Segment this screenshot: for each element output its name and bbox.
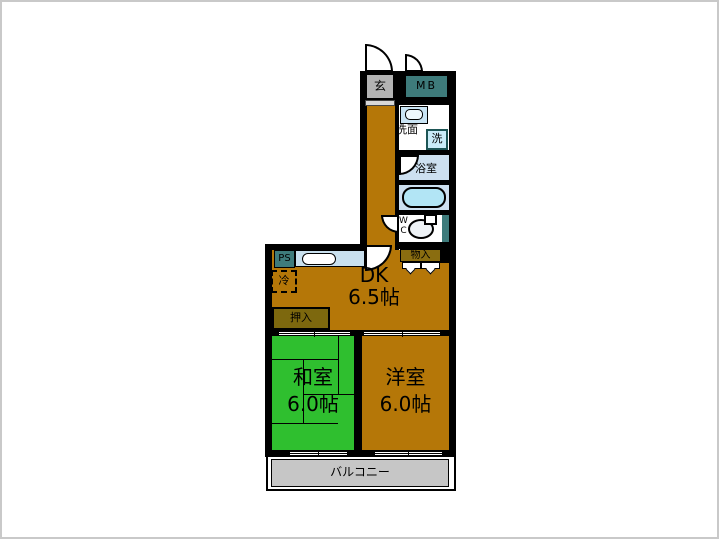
- entrance-label: 玄: [374, 80, 386, 94]
- balcony-label: バルコニー: [330, 466, 390, 480]
- pipe-shaft-label: PS: [278, 253, 290, 265]
- dk-size: 6.5帖: [348, 285, 400, 309]
- washroom-label: 洗面: [396, 124, 418, 137]
- wall-storage-right: [440, 242, 449, 263]
- storage-label: 物入: [411, 251, 431, 261]
- tatami-line: [272, 359, 338, 360]
- wall-genkan-mb-divider: [394, 71, 404, 105]
- wc-label-w: W: [399, 216, 408, 226]
- entrance: 玄: [365, 73, 395, 100]
- entrance-door-arc: [365, 44, 393, 72]
- entrance-step: [365, 100, 395, 106]
- meter-box-label: MB: [416, 80, 437, 93]
- washing-machine-icon: 洗: [426, 129, 448, 150]
- japanese-room-size: 6.0帖: [287, 392, 339, 416]
- sliding-tick-japanese: [314, 330, 315, 337]
- wc-duct: [442, 215, 449, 242]
- closet-label: 押入: [290, 312, 312, 325]
- western-room-size: 6.0帖: [380, 392, 432, 416]
- dk-name: DK: [360, 263, 389, 287]
- floor-plan: バルコニー 玄 MB 洗面 洗 浴室 W C PS 冷 物入 DK: [0, 0, 719, 539]
- wall-bath-tub: [397, 180, 449, 185]
- wall-rooms-divider: [354, 336, 362, 450]
- wall-right: [449, 71, 456, 457]
- sliding-tick-western: [402, 330, 403, 337]
- western-room-name: 洋室: [386, 365, 426, 389]
- closet-oshiire: 押入: [272, 307, 330, 330]
- wc-label-c: C: [400, 226, 406, 236]
- toilet-tank-icon: [424, 214, 437, 225]
- washing-machine-label: 洗: [432, 133, 443, 146]
- refrigerator-label: 冷: [279, 275, 290, 288]
- balcony: バルコニー: [271, 459, 449, 487]
- refrigerator-space: 冷: [271, 270, 297, 293]
- storage-closet: 物入: [400, 249, 441, 262]
- vanity-basin-icon: [405, 109, 423, 120]
- bathtub-icon: [402, 187, 446, 208]
- dk-label: DK 6.5帖: [319, 264, 429, 308]
- meter-box: MB: [404, 74, 449, 99]
- window-tick-japanese: [318, 450, 319, 457]
- pipe-shaft: PS: [274, 250, 295, 268]
- meter-box-door-arc: [405, 54, 423, 72]
- tatami-line: [272, 423, 338, 424]
- window-tick-western: [408, 450, 409, 457]
- western-room-label: 洋室 6.0帖: [362, 364, 449, 418]
- japanese-room-label: 和室 6.0帖: [272, 364, 354, 418]
- japanese-room-name: 和室: [293, 365, 333, 389]
- bathroom-label: 浴室: [415, 163, 437, 176]
- wall-mb-bottom: [404, 99, 456, 105]
